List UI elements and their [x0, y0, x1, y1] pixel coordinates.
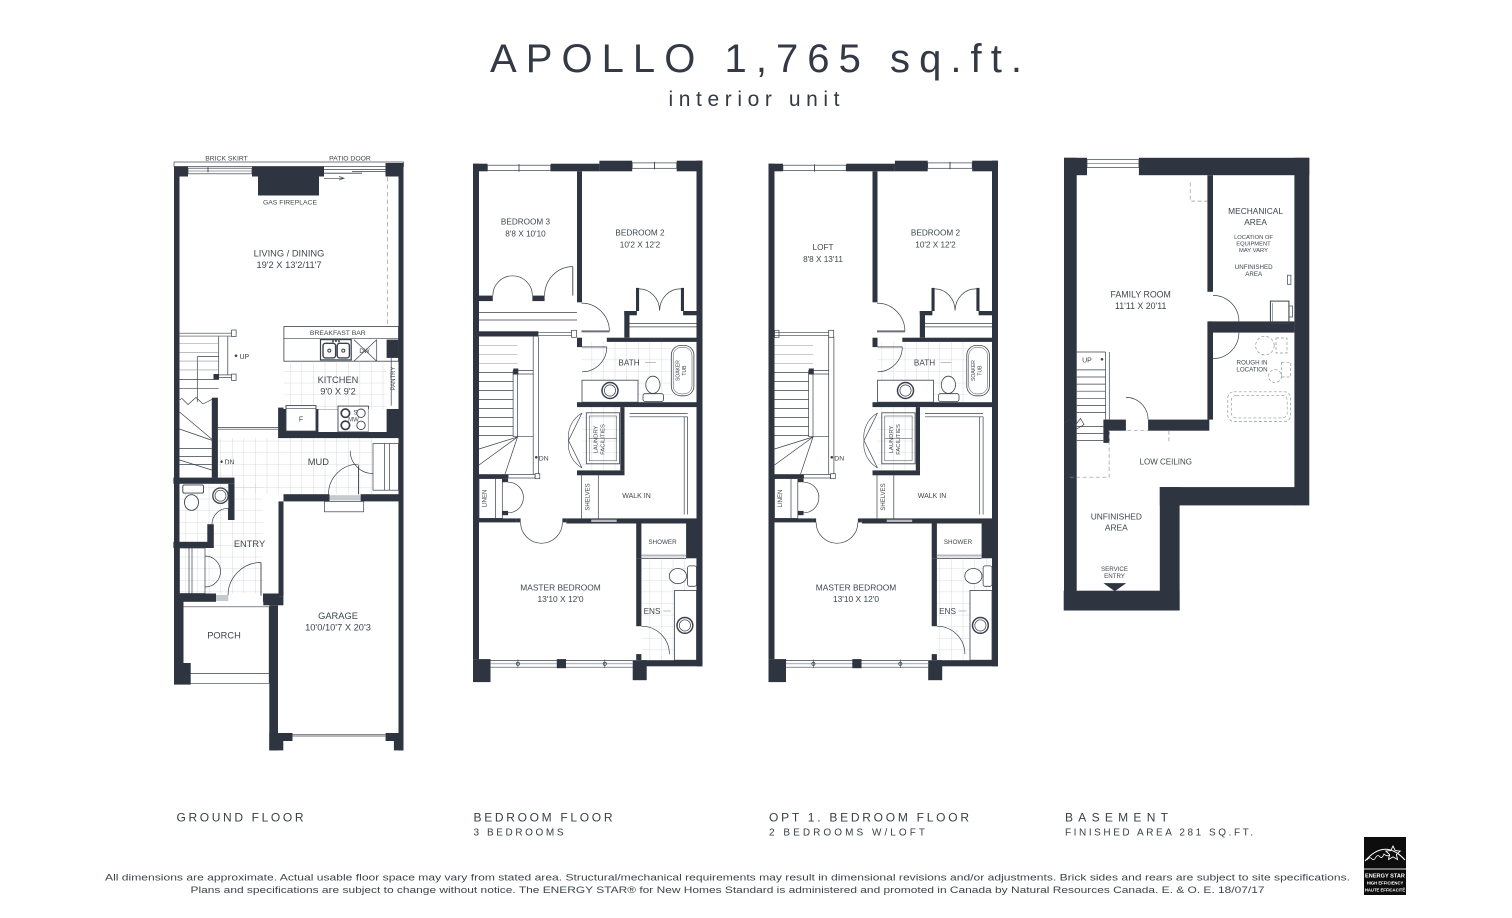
svg-text:ENERGY STAR: ENERGY STAR	[1365, 874, 1405, 880]
svg-text:LOFT: LOFT	[813, 243, 834, 252]
svg-text:BEDROOM 2: BEDROOM 2	[911, 229, 961, 238]
svg-text:GARAGE: GARAGE	[318, 611, 358, 621]
svg-text:Plans and specifications are s: Plans and specifications are subject to …	[191, 885, 1265, 896]
svg-text:10'2 X 12'2: 10'2 X 12'2	[915, 241, 956, 250]
svg-text:TUB: TUB	[682, 365, 688, 376]
svg-text:BASEMENT: BASEMENT	[1065, 811, 1169, 825]
svg-text:TUB: TUB	[977, 365, 983, 376]
svg-text:BREAKFAST BAR: BREAKFAST BAR	[310, 330, 366, 337]
svg-text:LOCATION OF: LOCATION OF	[1234, 235, 1273, 241]
svg-text:AREA: AREA	[1244, 217, 1267, 227]
svg-text:10'2 X 12'2: 10'2 X 12'2	[620, 241, 661, 250]
svg-text:8'8 X 10'10: 8'8 X 10'10	[505, 230, 546, 239]
svg-text:MW: MW	[348, 418, 359, 424]
svg-text:UNFINISHED: UNFINISHED	[1235, 264, 1273, 271]
svg-text:ENTRY: ENTRY	[1104, 573, 1125, 580]
svg-text:MUD: MUD	[308, 457, 329, 467]
svg-text:2 BEDROOMS W/LOFT: 2 BEDROOMS W/LOFT	[769, 827, 925, 838]
svg-text:FACILITIES: FACILITIES	[601, 424, 607, 455]
svg-text:BEDROOM 3: BEDROOM 3	[501, 218, 551, 227]
svg-text:LAUNDRY: LAUNDRY	[594, 426, 600, 454]
svg-text:APOLLO 1,765 sq.ft.: APOLLO 1,765 sq.ft.	[490, 37, 1022, 81]
svg-text:11'11 X 20'11: 11'11 X 20'11	[1115, 301, 1166, 311]
svg-text:AREA: AREA	[1105, 523, 1128, 533]
svg-text:GROUND FLOOR: GROUND FLOOR	[177, 811, 304, 825]
svg-text:BATH: BATH	[618, 358, 639, 367]
svg-text:PATIO DOOR: PATIO DOOR	[329, 156, 371, 163]
svg-text:FACILITIES: FACILITIES	[896, 424, 902, 455]
svg-text:UP: UP	[240, 354, 250, 361]
svg-text:LINEN: LINEN	[778, 490, 784, 508]
svg-text:13'10 X 12'0: 13'10 X 12'0	[537, 594, 583, 604]
svg-text:GAS FIREPLACE: GAS FIREPLACE	[263, 200, 317, 207]
svg-text:LAUNDRY: LAUNDRY	[889, 426, 895, 454]
svg-text:EQUIPMENT: EQUIPMENT	[1236, 242, 1271, 248]
svg-text:HIGH EFFICIENCY: HIGH EFFICIENCY	[1367, 881, 1404, 886]
svg-text:KITCHEN: KITCHEN	[318, 375, 359, 385]
svg-text:SHOWER: SHOWER	[944, 539, 973, 546]
svg-text:HAUTE EFFICACITÉ: HAUTE EFFICACITÉ	[1365, 888, 1405, 893]
svg-text:DN: DN	[539, 455, 549, 462]
svg-text:SHELVES: SHELVES	[881, 483, 887, 510]
svg-text:AREA: AREA	[1245, 271, 1263, 278]
svg-text:SHOWER: SHOWER	[648, 539, 677, 546]
svg-text:DW: DW	[359, 348, 369, 355]
svg-text:FINISHED AREA 281 SQ.FT.: FINISHED AREA 281 SQ.FT.	[1065, 827, 1253, 838]
svg-text:interior unit: interior unit	[669, 88, 840, 111]
svg-text:LIVING / DINING: LIVING / DINING	[254, 249, 325, 259]
svg-text:MAY VARY: MAY VARY	[1239, 248, 1268, 254]
svg-text:ENS: ENS	[939, 607, 956, 616]
svg-text:ROUGH IN: ROUGH IN	[1237, 360, 1268, 367]
svg-text:WALK IN: WALK IN	[622, 493, 651, 500]
svg-text:SERVICE: SERVICE	[1101, 566, 1128, 573]
svg-text:LOW CEILING: LOW CEILING	[1140, 458, 1192, 467]
svg-text:FAMILY ROOM: FAMILY ROOM	[1111, 290, 1171, 300]
svg-text:OPT 1. BEDROOM FLOOR: OPT 1. BEDROOM FLOOR	[769, 811, 969, 825]
svg-text:UP: UP	[1082, 357, 1092, 364]
svg-text:BEDROOM 2: BEDROOM 2	[615, 229, 665, 238]
svg-text:All dimensions are approximate: All dimensions are approximate. Actual u…	[105, 873, 1350, 884]
svg-text:SOAKER: SOAKER	[675, 360, 681, 381]
svg-text:13'10 X 12'0: 13'10 X 12'0	[833, 594, 879, 604]
svg-text:MASTER BEDROOM: MASTER BEDROOM	[816, 583, 897, 593]
svg-text:ENTRY: ENTRY	[234, 539, 265, 549]
svg-text:19'2 X 13'2/11'7: 19'2 X 13'2/11'7	[256, 260, 321, 270]
svg-text:LOCATION: LOCATION	[1236, 367, 1267, 374]
svg-text:BRICK SKIRT: BRICK SKIRT	[205, 156, 248, 163]
svg-text:DN: DN	[834, 455, 844, 462]
svg-text:SHELVES: SHELVES	[586, 483, 592, 510]
svg-text:8'8 X 13'11: 8'8 X 13'11	[803, 255, 843, 264]
svg-text:F: F	[299, 417, 303, 424]
svg-text:SOAKER: SOAKER	[971, 360, 977, 381]
svg-text:UNFINISHED: UNFINISHED	[1091, 512, 1142, 522]
svg-text:WALK IN: WALK IN	[918, 493, 947, 500]
svg-text:BEDROOM FLOOR: BEDROOM FLOOR	[474, 811, 613, 825]
svg-text:10'0/10'7 X 20'3: 10'0/10'7 X 20'3	[305, 623, 371, 633]
svg-text:3 BEDROOMS: 3 BEDROOMS	[474, 827, 564, 838]
svg-text:BATH: BATH	[914, 358, 935, 367]
svg-text:9'0 X 9'2: 9'0 X 9'2	[320, 387, 356, 397]
svg-text:MECHANICAL: MECHANICAL	[1228, 206, 1283, 216]
svg-text:MASTER BEDROOM: MASTER BEDROOM	[520, 583, 601, 593]
svg-text:PANTRY: PANTRY	[391, 367, 397, 391]
svg-text:S: S	[353, 411, 357, 417]
svg-text:PORCH: PORCH	[207, 631, 241, 641]
svg-text:ENS: ENS	[644, 607, 661, 616]
svg-text:LINEN: LINEN	[483, 490, 489, 508]
